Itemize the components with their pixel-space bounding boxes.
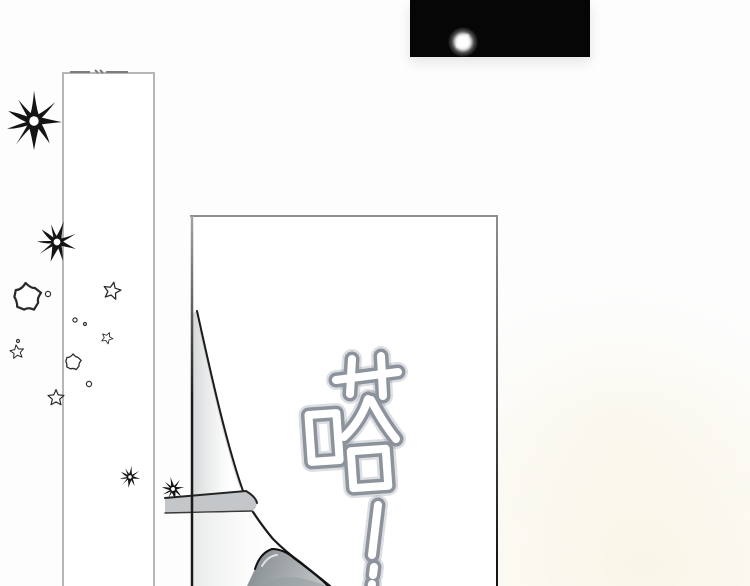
sfx-text-value: 嗒!	[0, 0, 1, 1]
manga-page: 嗒!	[0, 0, 750, 586]
left-panel	[62, 72, 155, 586]
glow-core-icon	[459, 38, 467, 46]
top-strip	[410, 0, 590, 57]
main-panel	[190, 215, 498, 586]
